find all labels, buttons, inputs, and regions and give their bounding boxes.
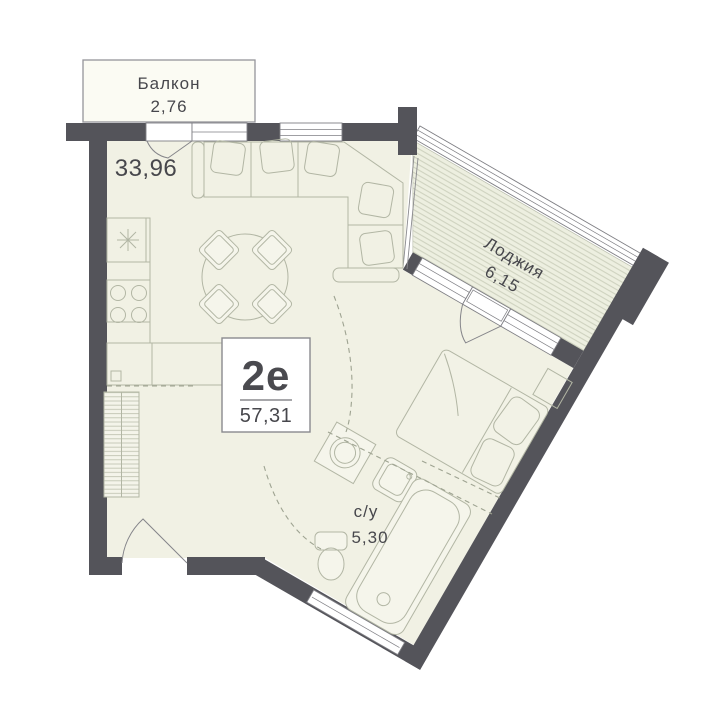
unit-label-box: 2е 57,31 — [222, 338, 310, 432]
bathroom-label: с/у — [354, 502, 379, 521]
bottom-wall-right — [187, 557, 265, 575]
floor-plan: Лоджия 6,15 — [0, 0, 726, 726]
unit-type: 2е — [242, 352, 291, 399]
top-window-2 — [280, 123, 342, 141]
balcony-label: Балкон — [137, 74, 200, 93]
unit-area: 57,31 — [240, 405, 293, 427]
balcony: Балкон 2,76 — [83, 60, 255, 122]
bathroom-area: 5,30 — [351, 528, 388, 547]
living-area-label: 33,96 — [115, 155, 178, 182]
top-wall-mid — [247, 123, 280, 141]
left-wall — [89, 123, 107, 575]
wardrobe — [104, 392, 139, 497]
floor-plan-page: Лоджия 6,15 — [0, 0, 726, 726]
top-corner-block — [398, 107, 417, 155]
balcony-area: 2,76 — [150, 97, 187, 116]
top-window-1 — [192, 123, 247, 141]
bottom-wall-left — [89, 557, 122, 575]
toilet — [315, 532, 347, 580]
